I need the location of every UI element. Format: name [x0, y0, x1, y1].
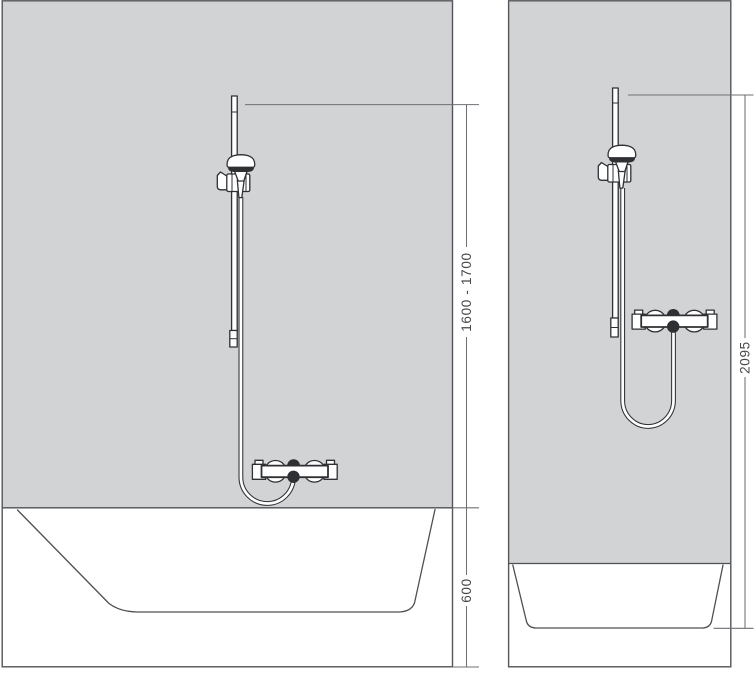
front-wall-fill: [2, 1, 452, 508]
mixer-hose-nut: [288, 471, 300, 483]
front-view-panel: [2, 1, 452, 667]
dimension-label-side-bar-top-height: 2095: [738, 341, 753, 374]
dimension-label-tub-rim-height: 600: [459, 578, 474, 603]
side-bathtub-outline: [513, 565, 723, 628]
side-view-panel: [509, 1, 731, 667]
rail-body: [613, 88, 619, 318]
front-bathtub-outline: [18, 510, 436, 613]
hand-shower-head: [227, 155, 255, 168]
side-wall-fill: [509, 1, 731, 564]
rail-body: [232, 96, 238, 331]
dimension-label-bar-height: 1600 - 1700: [459, 252, 474, 332]
installation-diagram: 1600 - 1700 600 2095: [0, 0, 754, 675]
diagram-svg: 1600 - 1700 600 2095: [0, 0, 754, 675]
